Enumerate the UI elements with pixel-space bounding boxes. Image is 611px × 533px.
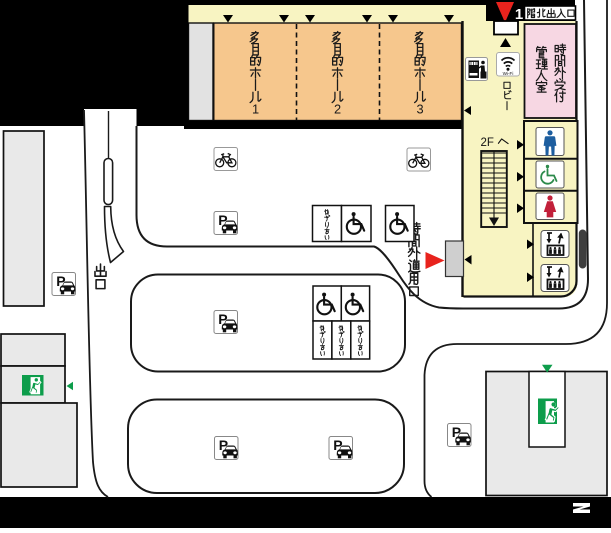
- svg-text:1: 1: [252, 101, 259, 116]
- svg-text:2F: 2F: [481, 137, 494, 149]
- svg-text:3: 3: [416, 101, 423, 116]
- svg-text:Wi-Fi: Wi-Fi: [503, 71, 514, 76]
- svg-text:2: 2: [334, 101, 341, 116]
